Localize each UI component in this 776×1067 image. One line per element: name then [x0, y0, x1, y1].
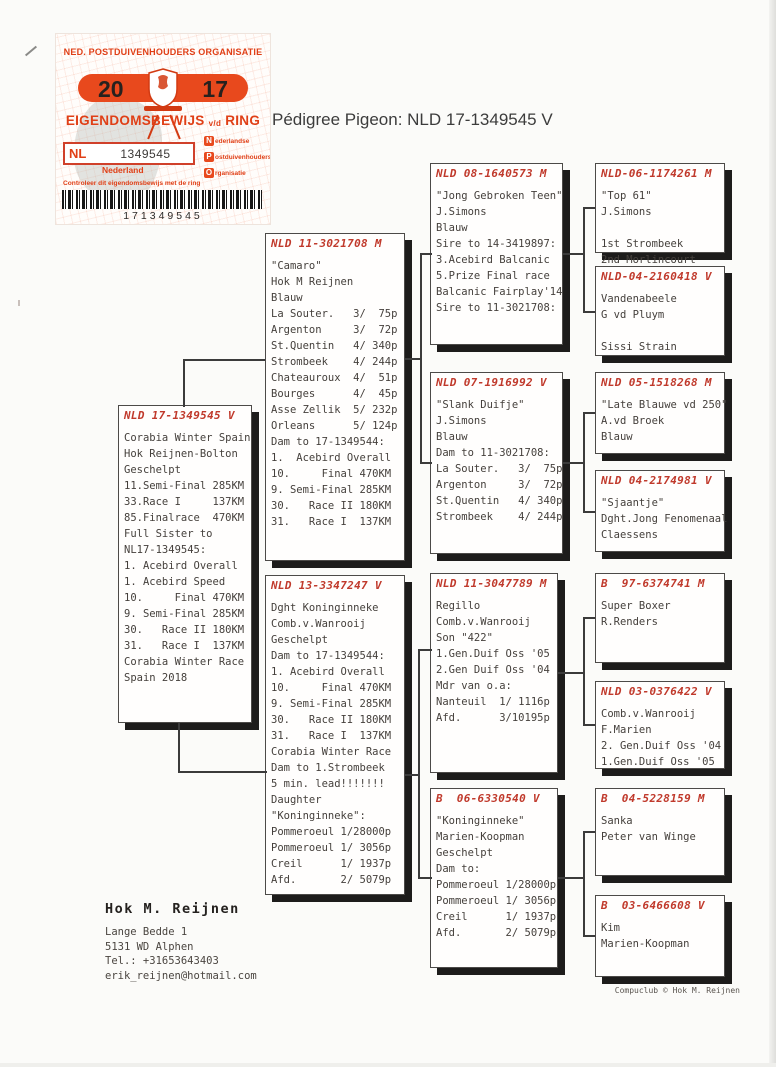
- pedigree-connector: [583, 617, 595, 619]
- pedigree-text-line: Blauw: [601, 429, 719, 445]
- pedigree-text-line: 1. Acebird Overall: [124, 558, 246, 574]
- pedigree-text-line: 33.Race I 137KM: [124, 494, 246, 510]
- software-credit: Compuclub © Hok M. Reijnen: [600, 986, 740, 995]
- pedigree-connector: [563, 462, 584, 464]
- npo-shield-icon: [148, 68, 178, 108]
- pedigree-connector: [583, 412, 595, 414]
- pedigree-text-line: "Late Blauwe vd 250": [601, 397, 719, 413]
- pedigree-text-line: Sire to 11-3021708:: [436, 300, 557, 316]
- pedigree-text-line: 9. Semi-Final 285KM: [124, 606, 246, 622]
- pedigree-text-line: Afd. 2/ 5079p: [271, 872, 399, 888]
- pedigree-text-line: 30. Race II 180KM: [124, 622, 246, 638]
- ring-number: NLD 08-1640573 M: [436, 167, 557, 183]
- pedigree-text-line: Full Sister to: [124, 526, 246, 542]
- pedigree-text-line: 5 min. lead!!!!!!!: [271, 776, 399, 792]
- pedigree-box-ds-dam: NLD 03-0376422 VComb.v.WanrooijF.Marien2…: [595, 681, 725, 769]
- pedigree-text-line: St.Quentin 4/ 340p: [436, 493, 557, 509]
- ring-number: NLD-06-1174261 M: [601, 167, 719, 183]
- pedigree-text-line: "Top 61": [601, 188, 719, 204]
- pedigree-text-line: Sissi Strain: [601, 339, 719, 355]
- pedigree-connector: [583, 935, 595, 937]
- pedigree-text-line: Orleans 5/ 124p: [271, 418, 399, 434]
- npo-row: P ostduivenhouders: [204, 149, 271, 165]
- pedigree-text-line: 2.Gen Duif Oss '04: [436, 662, 552, 678]
- pedigree-text-line: 11.Semi-Final 285KM: [124, 478, 246, 494]
- pedigree-text-line: 31. Race I 137KM: [271, 514, 399, 530]
- pedigree-text-line: Regillo: [436, 598, 552, 614]
- npo-letter-p: P: [204, 152, 214, 162]
- pedigree-box-ds-sire: B 97-6374741 MSuper BoxerR.Renders: [595, 573, 725, 663]
- npo-row: N ederlandse: [204, 133, 271, 149]
- pedigree-text-line: Pommeroeul 1/ 3056p: [271, 840, 399, 856]
- pedigree-text-line: "Slank Duifje": [436, 397, 557, 413]
- pedigree-text-line: 1.Gen.Duif Oss '05: [436, 646, 552, 662]
- pedigree-text-line: J.Simons: [436, 413, 557, 429]
- pedigree-text-line: 1st Strombeek: [601, 236, 719, 252]
- certificate-org-title: NED. POSTDUIVENHOUDERS ORGANISATIE: [56, 47, 270, 57]
- shield-ribbon: [144, 106, 182, 111]
- pedigree-text-line: Spain 2018: [124, 670, 246, 686]
- pedigree-connector: [178, 723, 180, 773]
- npo-word: rganisatie: [215, 170, 246, 177]
- pedigree-text-line: Pommeroeul 1/ 3056p: [436, 893, 552, 909]
- pedigree-text-line: Chateauroux 4/ 51p: [271, 370, 399, 386]
- doc-type-small: v/d: [209, 119, 221, 128]
- npo-row: O rganisatie: [204, 165, 271, 181]
- pedigree-text-line: "Camaro": [271, 258, 399, 274]
- pedigree-text-line: Dght.Jong Fenomenaal: [601, 511, 719, 527]
- pedigree-box-dam-dam: B 06-6330540 V"Koninginneke"Marien-Koopm…: [430, 788, 558, 968]
- pedigree-connector: [583, 832, 585, 937]
- pedigree-text-line: Afd. 2/ 5079p: [436, 925, 552, 941]
- pedigree-text-line: Kim: [601, 920, 719, 936]
- pedigree-box-dd-dam: B 03-6466608 VKimMarien-Koopman: [595, 895, 725, 977]
- scan-artifact: [18, 300, 20, 306]
- pedigree-text-line: 30. Race II 180KM: [271, 498, 399, 514]
- pedigree-text-line: Geschelpt: [436, 845, 552, 861]
- pedigree-text-line: Afd. 3/10195p: [436, 710, 552, 726]
- pedigree-text-line: Blauw: [271, 290, 399, 306]
- pedigree-text-line: Bourges 4/ 45p: [271, 386, 399, 402]
- pedigree-text-line: Dam to:: [436, 861, 552, 877]
- pedigree-connector: [558, 877, 584, 879]
- pedigree-text-line: 1. Acebird Overall: [271, 450, 399, 466]
- pedigree-box-ss-sire: NLD-06-1174261 M"Top 61"J.Simons 1st Str…: [595, 163, 725, 253]
- npo-word: ederlandse: [215, 138, 249, 145]
- barcode-number: 171349545: [56, 210, 270, 222]
- pedigree-box-dd-sire: B 04-5228159 MSankaPeter van Winge: [595, 788, 725, 876]
- certificate-doc-type: EIGENDOMSBEWIJS v/d RING: [56, 113, 270, 128]
- pedigree-text-line: Comb.v.Wanrooij: [436, 614, 552, 630]
- pedigree-text-line: 30. Race II 180KM: [271, 712, 399, 728]
- pedigree-text-line: Argenton 3/ 72p: [271, 322, 399, 338]
- pedigree-text-line: "Koninginneke": [436, 813, 552, 829]
- ring-number: NLD 03-0376422 V: [601, 685, 719, 701]
- ownership-certificate: NED. POSTDUIVENHOUDERS ORGANISATIE 20 17…: [55, 33, 271, 225]
- npo-letters: N ederlandse P ostduivenhouders O rganis…: [204, 133, 271, 181]
- ring-number: NLD 13-3347247 V: [271, 579, 399, 595]
- npo-letter-o: O: [204, 168, 214, 178]
- pedigree-box-ss-dam: NLD-04-2160418 VVandenabeeleG vd Pluym S…: [595, 266, 725, 356]
- pedigree-connector: [420, 462, 432, 464]
- pedigree-text-line: Marien-Koopman: [601, 936, 719, 952]
- pedigree-connector: [583, 207, 595, 209]
- ring-number-value: 1349545: [120, 147, 170, 161]
- pedigree-connector: [178, 771, 267, 773]
- ring-number: NLD 17-1349545 V: [124, 409, 246, 425]
- pedigree-text-line: J.Simons: [436, 204, 557, 220]
- doc-type-main: EIGENDOMSBEWIJS: [66, 113, 205, 128]
- ring-number: NLD 05-1518268 M: [601, 376, 719, 392]
- pedigree-text-line: R.Renders: [601, 614, 719, 630]
- pedigree-text-line: Asse Zellik 5/ 232p: [271, 402, 399, 418]
- pedigree-box-sire-sire: NLD 08-1640573 M"Jong Gebroken Teen"J.Si…: [430, 163, 563, 345]
- pedigree-text-line: Geschelpt: [124, 462, 246, 478]
- pedigree-text-line: J.Simons: [601, 204, 719, 220]
- pedigree-text-line: Comb.v.Wanrooij: [601, 706, 719, 722]
- pedigree-text-line: Peter van Winge: [601, 829, 719, 845]
- ring-number: B 04-5228159 M: [601, 792, 719, 808]
- scan-edge: [769, 0, 776, 1067]
- pedigree-text-line: A.vd Broek: [601, 413, 719, 429]
- ring-number: B 03-6466608 V: [601, 899, 719, 915]
- ring-number: B 06-6330540 V: [436, 792, 552, 808]
- pedigree-text-line: Balcanic Fairplay'14: [436, 284, 557, 300]
- owner-phone: Tel.: +31653643403: [105, 954, 257, 969]
- pedigree-text-line: Dam to 11-3021708:: [436, 445, 557, 461]
- pedigree-text-line: Corabia Winter Race: [271, 744, 399, 760]
- pedigree-text-line: Nanteuil 1/ 1116p: [436, 694, 552, 710]
- pedigree-box-sd-dam: NLD 04-2174981 V"Sjaantje"Dght.Jong Feno…: [595, 470, 725, 552]
- pedigree-text-line: Super Boxer: [601, 598, 719, 614]
- pedigree-text-line: G vd Pluym: [601, 307, 719, 323]
- pedigree-text-line: Dam to 17-1349544:: [271, 648, 399, 664]
- pedigree-connector: [418, 650, 420, 879]
- owner-address1: Lange Bedde 1: [105, 925, 257, 940]
- pedigree-connector: [558, 672, 584, 674]
- pedigree-connector: [420, 253, 432, 255]
- scan-edge-bottom: [0, 1063, 776, 1067]
- year-right: 17: [202, 76, 228, 103]
- pedigree-connector: [418, 649, 432, 651]
- pedigree-connector: [563, 253, 584, 255]
- pedigree-text-line: 1. Acebird Speed: [124, 574, 246, 590]
- pedigree-text-line: 1.Gen.Duif Oss '05: [601, 754, 719, 770]
- owner-name: Hok M. Reijnen: [105, 901, 257, 917]
- pedigree-text-line: Creil 1/ 1937p: [436, 909, 552, 925]
- pedigree-text-line: Blauw: [436, 429, 557, 445]
- doc-type-end: RING: [225, 113, 260, 128]
- pedigree-text-line: F.Marien: [601, 722, 719, 738]
- ring-number: NLD 07-1916992 V: [436, 376, 557, 392]
- pedigree-text-line: Hok M Reijnen: [271, 274, 399, 290]
- pedigree-text-line: 10. Final 470KM: [271, 680, 399, 696]
- pedigree-box-dam-sire: NLD 11-3047789 MRegilloComb.v.WanrooijSo…: [430, 573, 558, 773]
- pedigree-box-subject: NLD 17-1349545 VCorabia Winter SpainHok …: [118, 405, 252, 723]
- pedigree-text-line: 5.Prize Final race: [436, 268, 557, 284]
- pedigree-text-line: Marien-Koopman: [436, 829, 552, 845]
- pedigree-box-dam: NLD 13-3347247 VDght KoninginnekeComb.v.…: [265, 575, 405, 895]
- pedigree-connector: [418, 877, 432, 879]
- pedigree-text-line: St.Quentin 4/ 340p: [271, 338, 399, 354]
- ring-number: B 97-6374741 M: [601, 577, 719, 593]
- pedigree-text-line: 10. Final 470KM: [124, 590, 246, 606]
- ring-number-field: NL 1349545: [63, 142, 195, 165]
- pedigree-text-line: NL17-1349545:: [124, 542, 246, 558]
- pedigree-text-line: 31. Race I 137KM: [271, 728, 399, 744]
- pedigree-text-line: Son "422": [436, 630, 552, 646]
- pedigree-text-line: Mdr van o.a:: [436, 678, 552, 694]
- pedigree-connector: [583, 413, 585, 513]
- pedigree-text-line: Daughter: [271, 792, 399, 808]
- owner-email: erik_reijnen@hotmail.com: [105, 969, 257, 984]
- pedigree-connector: [583, 208, 585, 313]
- pedigree-text-line: Argenton 3/ 72p: [436, 477, 557, 493]
- pedigree-text-line: 9. Semi-Final 285KM: [271, 696, 399, 712]
- pedigree-text-line: Sanka: [601, 813, 719, 829]
- pedigree-text-line: Dam to 1.Strombeek: [271, 760, 399, 776]
- pedigree-text-line: Corabia Winter Spain: [124, 430, 246, 446]
- pedigree-text-line: La Souter. 3/ 75p: [271, 306, 399, 322]
- pedigree-connector: [583, 311, 595, 313]
- pedigree-text-line: Corabia Winter Race: [124, 654, 246, 670]
- pedigree-text-line: Vandenabeele: [601, 291, 719, 307]
- pedigree-text-line: Hok Reijnen-Bolton: [124, 446, 246, 462]
- barcode: [62, 190, 262, 209]
- ring-number: NLD 04-2174981 V: [601, 474, 719, 490]
- pedigree-text-line: "Koninginneke":: [271, 808, 399, 824]
- pedigree-text-line: [601, 220, 719, 236]
- pedigree-text-line: "Jong Gebroken Teen": [436, 188, 557, 204]
- pedigree-text-line: Claessens: [601, 527, 719, 543]
- pedigree-connector: [583, 831, 595, 833]
- scan-artifact: [25, 46, 37, 57]
- owner-block: Hok M. Reijnen Lange Bedde 1 5131 WD Alp…: [105, 901, 257, 983]
- pedigree-box-sd-sire: NLD 05-1518268 M"Late Blauwe vd 250"A.vd…: [595, 372, 725, 454]
- pedigree-box-sire-dam: NLD 07-1916992 V"Slank Duifje"J.SimonsBl…: [430, 372, 563, 554]
- pedigree-text-line: 10. Final 470KM: [271, 466, 399, 482]
- certificate-note: Controleer dit eigendomsbewijs met de ri…: [63, 180, 200, 187]
- pedigree-text-line: Blauw: [436, 220, 557, 236]
- pedigree-document: NED. POSTDUIVENHOUDERS ORGANISATIE 20 17…: [0, 0, 776, 1067]
- year-left: 20: [98, 76, 124, 103]
- pedigree-text-line: Dght Koninginneke: [271, 600, 399, 616]
- pedigree-text-line: Dam to 17-1349544:: [271, 434, 399, 450]
- npo-word: ostduivenhouders: [215, 154, 271, 161]
- pedigree-connector: [583, 724, 595, 726]
- ring-number: NLD 11-3021708 M: [271, 237, 399, 253]
- ring-number: NLD-04-2160418 V: [601, 270, 719, 286]
- pedigree-text-line: 9. Semi-Final 285KM: [271, 482, 399, 498]
- pedigree-text-line: Strombeek 4/ 244p: [436, 509, 557, 525]
- pedigree-text-line: Pommeroeul 1/28000p: [271, 824, 399, 840]
- pedigree-text-line: Strombeek 4/ 244p: [271, 354, 399, 370]
- pedigree-text-line: 85.Finalrace 470KM: [124, 510, 246, 526]
- pedigree-text-line: Geschelpt: [271, 632, 399, 648]
- pedigree-text-line: Pommeroeul 1/28000p: [436, 877, 552, 893]
- pedigree-text-line: 31. Race I 137KM: [124, 638, 246, 654]
- pedigree-text-line: 3.Acebird Balcanic: [436, 252, 557, 268]
- pedigree-connector: [420, 254, 422, 464]
- pedigree-text-line: La Souter. 3/ 75p: [436, 461, 557, 477]
- pedigree-connector: [583, 618, 585, 726]
- pedigree-text-line: [601, 323, 719, 339]
- page-title: Pédigree Pigeon: NLD 17-1349545 V: [272, 110, 553, 130]
- pedigree-connector: [183, 359, 265, 361]
- pedigree-text-line: Sire to 14-3419897:: [436, 236, 557, 252]
- country-name: Nederland: [102, 165, 144, 175]
- country-code: NL: [65, 146, 86, 161]
- owner-address2: 5131 WD Alphen: [105, 940, 257, 955]
- pedigree-box-sire: NLD 11-3021708 M"Camaro"Hok M ReijnenBla…: [265, 233, 405, 561]
- pedigree-text-line: "Sjaantje": [601, 495, 719, 511]
- pedigree-text-line: 2. Gen.Duif Oss '04: [601, 738, 719, 754]
- pedigree-text-line: Creil 1/ 1937p: [271, 856, 399, 872]
- pedigree-text-line: 1. Acebird Overall: [271, 664, 399, 680]
- pedigree-connector: [183, 359, 185, 407]
- pedigree-text-line: Comb.v.Wanrooij: [271, 616, 399, 632]
- pedigree-connector: [583, 511, 595, 513]
- ring-number: NLD 11-3047789 M: [436, 577, 552, 593]
- npo-letter-n: N: [204, 136, 214, 146]
